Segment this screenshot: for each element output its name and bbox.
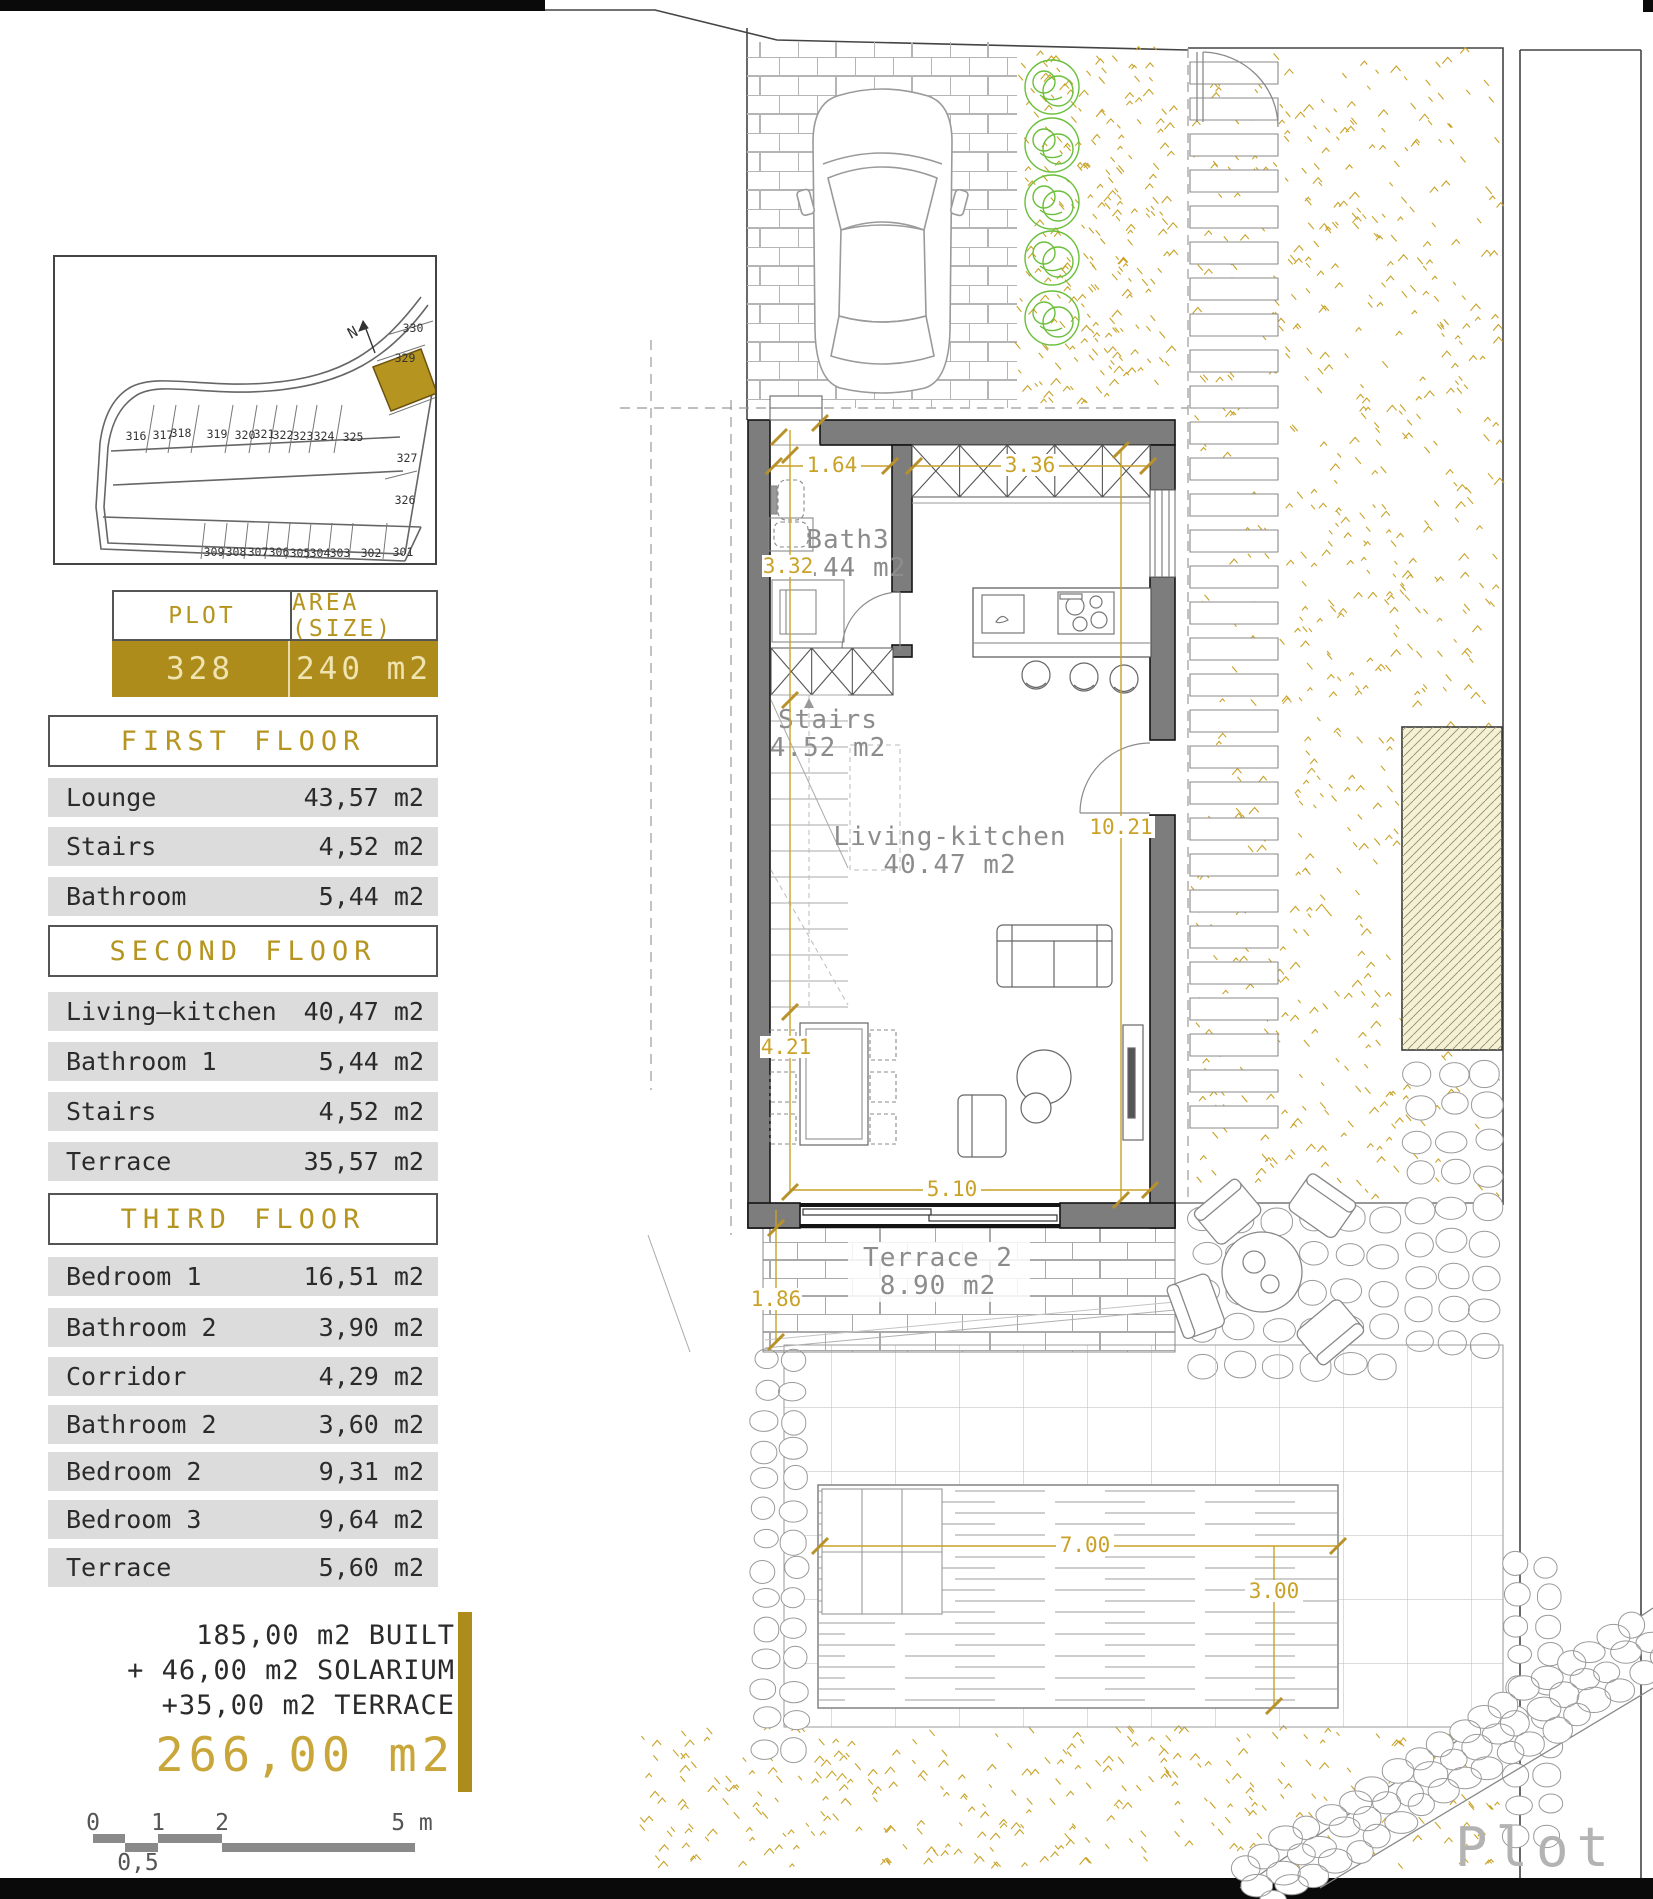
room-area: 9,64 m2 (319, 1505, 424, 1534)
floor-section-title: THIRD FLOOR (48, 1193, 438, 1245)
scale-tick-0: 0 (86, 1810, 100, 1836)
total-built-line: 185,00 m2 BUILT (60, 1620, 455, 1654)
plot-label: 325 (343, 430, 364, 444)
svg-text:4.21: 4.21 (761, 1035, 812, 1059)
plot-label: 307 (248, 545, 269, 559)
room-label: Terrace 2 (863, 1243, 1013, 1273)
room-name: Stairs (66, 1097, 156, 1126)
table-row: Bathroom5,44 m2 (48, 877, 438, 916)
house (748, 396, 1175, 1228)
svg-text:5.10: 5.10 (927, 1177, 978, 1201)
wall (1150, 815, 1175, 1228)
total-solarium-line: + 46,00 m2 SOLARIUM (60, 1655, 455, 1689)
room-name: Lounge (66, 783, 156, 812)
plot-label: 320 (235, 428, 256, 442)
room-name: Bedroom 1 (66, 1262, 201, 1291)
floor-section-title: SECOND FLOOR (48, 925, 438, 977)
plot-label: 309 (204, 545, 225, 559)
plot-label: 329 (395, 351, 416, 365)
svg-text:3.36: 3.36 (1005, 453, 1056, 477)
plot-label: 318 (171, 426, 192, 440)
wall (1150, 577, 1175, 740)
table-row: Bedroom 116,51 m2 (48, 1257, 438, 1296)
floor-section-title: FIRST FLOOR (48, 715, 438, 767)
room-name: Terrace (66, 1147, 171, 1176)
table-row: Terrace5,60 m2 (48, 1548, 438, 1587)
room-area: 5,44 m2 (319, 1047, 424, 1076)
plot-label: 330 (403, 321, 424, 335)
room-name: Bedroom 3 (66, 1505, 201, 1534)
scale-end-label: 5 m (391, 1810, 433, 1836)
room-area-label: 4.52 m2 (770, 733, 887, 763)
room-name: Terrace (66, 1553, 171, 1582)
table-row: Stairs4,52 m2 (48, 827, 438, 866)
plot-label: 327 (397, 451, 418, 465)
scale-segment (158, 1834, 222, 1843)
room-name: Bathroom 2 (66, 1313, 217, 1342)
table-row: Corridor4,29 m2 (48, 1357, 438, 1396)
dimension-label: 3.36 (1001, 453, 1059, 477)
plot-label: 305 (290, 546, 311, 560)
table-row: Bathroom 23,90 m2 (48, 1308, 438, 1347)
plot-label: 323 (293, 429, 314, 443)
room-label: Living-kitchen (833, 822, 1066, 852)
pool-steps (822, 1489, 942, 1614)
plot-area-table: PLOT AREA (SIZE) 328 240 m2 (112, 590, 438, 697)
dimension-label: 3.00 (1245, 1579, 1303, 1603)
svg-text:3.00: 3.00 (1249, 1579, 1300, 1603)
scale-tick-1: 1 (151, 1810, 165, 1836)
dimension-label: 1.64 (803, 453, 861, 477)
room-area: 16,51 m2 (304, 1262, 424, 1291)
table-row: Bathroom 23,60 m2 (48, 1405, 438, 1444)
table-row: Terrace35,57 m2 (48, 1142, 438, 1181)
scale-tick-2: 2 (215, 1810, 229, 1836)
plot-size-cell: 240 m2 (290, 641, 438, 697)
svg-text:3.32: 3.32 (763, 554, 814, 578)
svg-text:10.21: 10.21 (1089, 815, 1152, 839)
plot-label: 304 (310, 546, 331, 560)
car-icon (796, 89, 969, 393)
plot-label: 319 (207, 427, 228, 441)
room-area: 5,44 m2 (319, 882, 424, 911)
svg-text:7.00: 7.00 (1060, 1533, 1111, 1557)
room-name: Corridor (66, 1362, 186, 1391)
table-row: Bathroom 15,44 m2 (48, 1042, 438, 1081)
room-area: 35,57 m2 (304, 1147, 424, 1176)
wall (892, 645, 912, 657)
wall (1150, 445, 1175, 490)
dimension-label: 1.86 (750, 1287, 802, 1311)
plot-label: 301 (393, 545, 414, 559)
site-plan-map: N316317318319320321322323324325330329327… (55, 257, 435, 563)
scale-segment (222, 1843, 415, 1852)
plot-watermark-label: Plot (1455, 1816, 1617, 1879)
scale-segment (93, 1834, 125, 1843)
room-area: 9,31 m2 (319, 1457, 424, 1486)
room-name: Bathroom (66, 882, 186, 911)
bush-icons (1025, 60, 1079, 345)
room-label: Stairs (778, 705, 878, 735)
scale-half-label: 0,5 (117, 1850, 159, 1876)
room-name: Bathroom 1 (66, 1047, 217, 1076)
kitchen-island (973, 588, 1151, 657)
plot-label: 308 (226, 545, 247, 559)
room-area: 43,57 m2 (304, 783, 424, 812)
dimension-label: 3.32 (762, 554, 814, 578)
room-area: 3,90 m2 (319, 1313, 424, 1342)
hatched-area (1402, 727, 1502, 1050)
plot-label: 303 (330, 546, 351, 560)
svg-text:1.64: 1.64 (807, 453, 858, 477)
table-row: Lounge43,57 m2 (48, 778, 438, 817)
plot-header-cell: PLOT (114, 592, 292, 639)
room-area: 4,52 m2 (319, 832, 424, 861)
dimension-label: 5.10 (923, 1177, 981, 1201)
room-name: Bedroom 2 (66, 1457, 201, 1486)
svg-text:1.86: 1.86 (751, 1287, 802, 1311)
room-name: Living–kitchen (66, 997, 277, 1026)
dimension-label: 10.21 (1087, 815, 1155, 839)
plot-label: 302 (361, 546, 382, 560)
table-row: Stairs4,52 m2 (48, 1092, 438, 1131)
room-label: Bath3 (806, 525, 889, 555)
scale-segment (125, 1843, 158, 1852)
dimension-label: 4.21 (760, 1035, 812, 1059)
plot-number-cell: 328 (112, 641, 290, 697)
site-plan-box: N316317318319320321322323324325330329327… (53, 255, 437, 565)
svg-text:N: N (344, 322, 360, 342)
stepping-stones (1190, 62, 1278, 1128)
dimension-label: 7.00 (1056, 1533, 1114, 1557)
total-area: 266,00 m2 (60, 1728, 455, 1783)
wall (820, 420, 1175, 445)
room-area: 40,47 m2 (304, 997, 424, 1026)
total-terrace-line: +35,00 m2 TERRACE (60, 1690, 455, 1724)
plot-label: 316 (126, 429, 147, 443)
window (1150, 490, 1175, 577)
plot-label: 322 (273, 428, 294, 442)
room-area: 4,52 m2 (319, 1097, 424, 1126)
table-row: Bedroom 29,31 m2 (48, 1452, 438, 1491)
room-name: Stairs (66, 832, 156, 861)
room-area: 3,60 m2 (319, 1410, 424, 1439)
wall (748, 420, 770, 1228)
room-area: 4,29 m2 (319, 1362, 424, 1391)
gold-accent-bar (458, 1612, 472, 1792)
table-row: Living–kitchen40,47 m2 (48, 992, 438, 1031)
plot-label: 324 (314, 429, 335, 443)
plot-label: 326 (395, 493, 416, 507)
cobble-paving (1402, 1060, 1503, 1358)
floorplan-page: Bath35.44 m2Stairs4.52 m2Living-kitchen4… (0, 0, 1653, 1899)
wall (748, 1203, 800, 1228)
wall (1060, 1203, 1175, 1228)
table-row: Bedroom 39,64 m2 (48, 1500, 438, 1539)
plot-label: 306 (269, 545, 290, 559)
room-area: 5,60 m2 (319, 1553, 424, 1582)
plot-label: 321 (254, 427, 275, 441)
room-area-label: 40.47 m2 (883, 850, 1016, 880)
area-header-cell: AREA (SIZE) (292, 592, 436, 639)
room-name: Bathroom 2 (66, 1410, 217, 1439)
room-area-label: 8.90 m2 (880, 1271, 997, 1301)
